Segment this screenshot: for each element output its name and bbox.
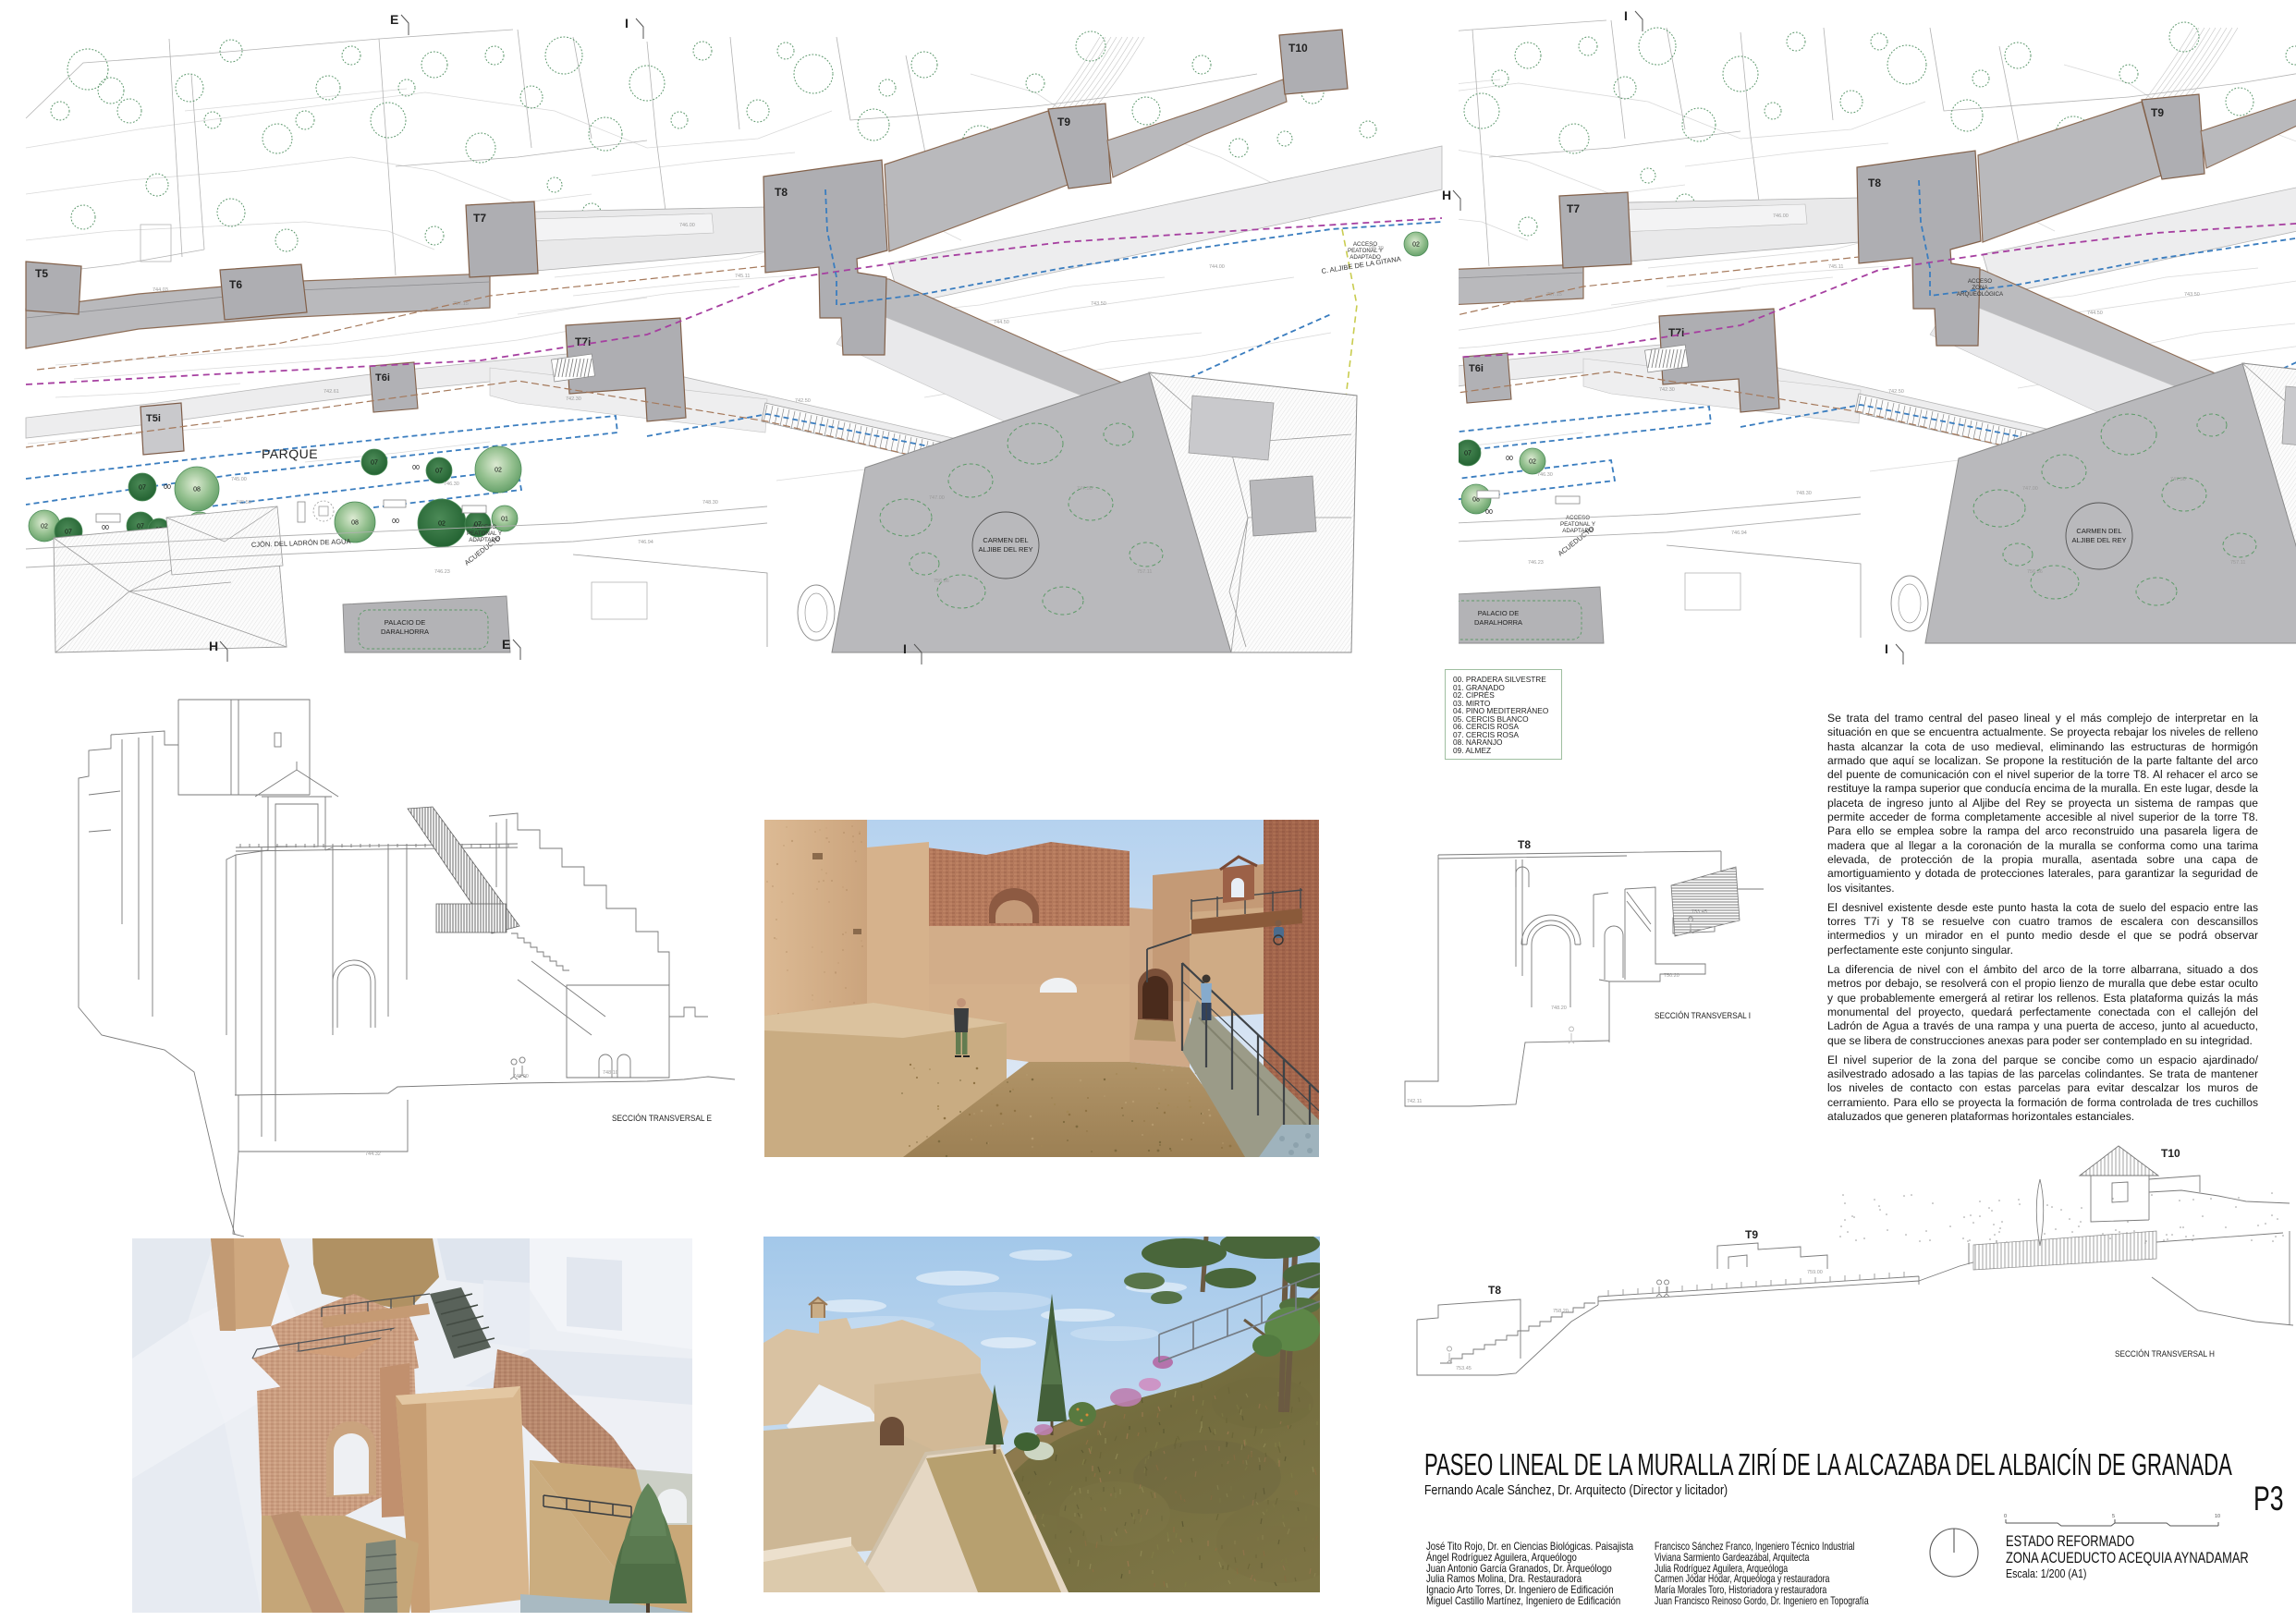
svg-text:T9: T9 [1745,1228,1758,1241]
svg-text:SECCIÓN TRANSVERSAL H: SECCIÓN TRANSVERSAL H [2115,1349,2215,1359]
svg-text:0: 0 [2004,1514,2007,1519]
svg-text:744.32: 744.32 [365,1152,381,1157]
svg-text:753.45: 753.45 [1456,1366,1472,1371]
svg-text:748.20: 748.20 [1551,1006,1567,1011]
svg-text:759.00: 759.00 [1807,1270,1823,1275]
svg-text:T8: T8 [1488,1284,1501,1297]
svg-text:T8: T8 [1518,838,1531,851]
svg-text:753.45: 753.45 [1691,909,1707,915]
svg-text:742.11: 742.11 [1407,1099,1422,1104]
svg-text:10: 10 [2215,1514,2220,1519]
svg-text:758.20: 758.20 [1553,1309,1569,1314]
svg-text:748.10: 748.10 [603,1070,618,1076]
svg-text:5: 5 [2112,1514,2115,1519]
svg-text:750.20: 750.20 [1664,973,1679,979]
svg-text:T10: T10 [2161,1147,2180,1160]
svg-text:SECCIÓN TRANSVERSAL E: SECCIÓN TRANSVERSAL E [612,1114,712,1124]
svg-text:SECCIÓN TRANSVERSAL I: SECCIÓN TRANSVERSAL I [1655,1011,1751,1021]
svg-text:748.00: 748.00 [513,1074,529,1079]
